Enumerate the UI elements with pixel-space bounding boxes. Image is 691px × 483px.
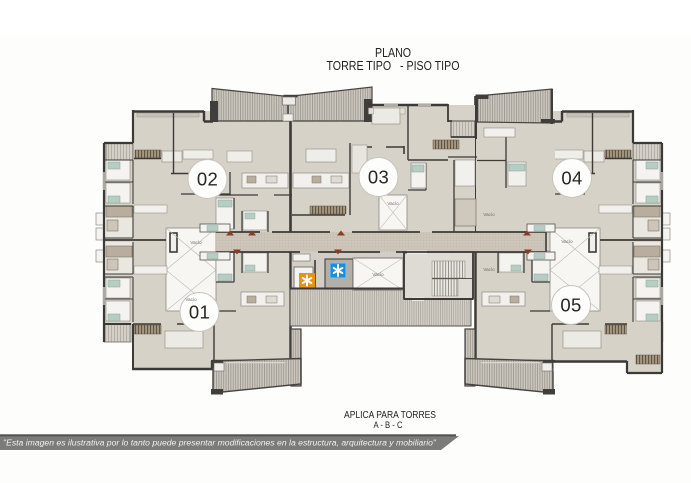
svg-text:A - B - C: A - B - C [374,420,403,430]
svg-text:02: 02 [197,169,218,190]
svg-text:03: 03 [368,167,389,188]
svg-text:"Esta imagen es ilustrativa po: "Esta imagen es ilustrativa por lo tanto… [3,439,437,448]
svg-text:Vacío: Vacío [185,297,197,302]
svg-text:Vacío: Vacío [387,201,399,206]
svg-text:Vacío: Vacío [372,272,384,277]
svg-text:04: 04 [561,168,582,189]
svg-text:Vacío: Vacío [561,239,573,244]
svg-text:TORRE TIPO - PISO TIPO: TORRE TIPO - PISO TIPO [327,58,460,73]
svg-text:05: 05 [560,295,581,316]
svg-text:01: 01 [189,302,210,323]
svg-text:Vacío: Vacío [483,267,495,272]
svg-text:Vacío: Vacío [483,212,495,217]
svg-text:Vacío: Vacío [190,240,202,245]
